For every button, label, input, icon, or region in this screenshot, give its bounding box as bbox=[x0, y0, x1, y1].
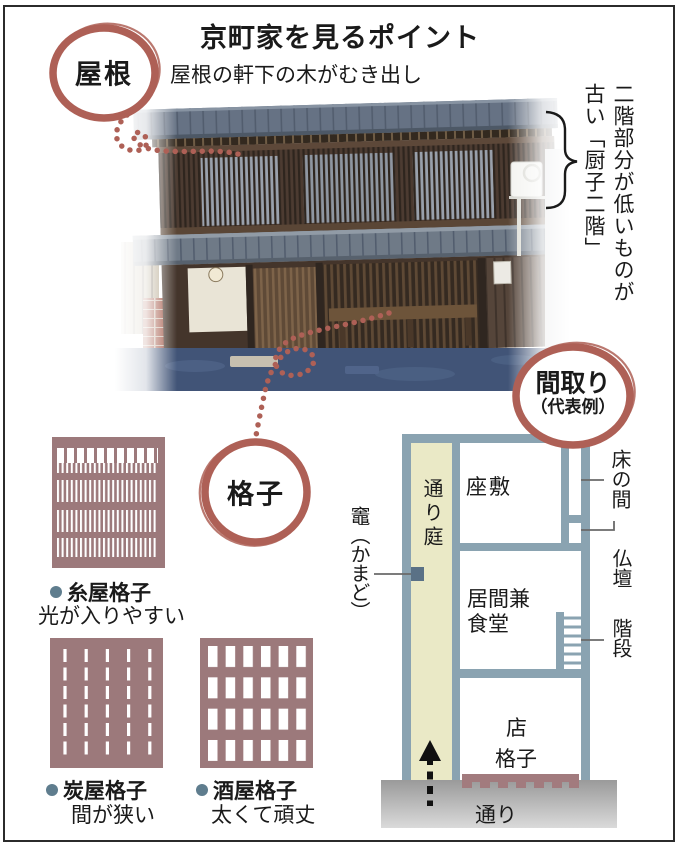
room-label-zashiki: 座敷 bbox=[466, 471, 512, 501]
bullet-icon bbox=[46, 784, 58, 796]
infographic-kyomachiya: 京町家を見るポイント 屋根の軒下の木がむき出し 屋根 格子 間取り （代表例） … bbox=[0, 0, 680, 851]
koshi-circle-label: 格子 bbox=[227, 473, 285, 512]
kamado-marker bbox=[411, 567, 424, 581]
room-label-ima: 居間兼 食堂 bbox=[467, 587, 530, 637]
street-label: 通り bbox=[475, 799, 517, 829]
itoya-koshi-diagram bbox=[52, 437, 165, 568]
sumiya-koshi-diagram bbox=[50, 638, 163, 768]
second-floor-note-line2: 古い「厨子二階」 bbox=[582, 83, 605, 259]
kamado-label: 竈（かまど） bbox=[344, 506, 373, 620]
dotted-trails bbox=[116, 115, 389, 436]
room-label-kaidan: 階段 bbox=[606, 618, 635, 658]
madori-label: 間取り bbox=[531, 371, 616, 398]
page-title: 京町家を見るポイント bbox=[0, 16, 680, 55]
sakaya-koshi-diagram bbox=[200, 638, 314, 768]
room-label-toriniwa: 通り庭 bbox=[417, 478, 446, 550]
lattice-desc-sumiya: 間が狭い bbox=[71, 799, 155, 829]
roof-circle-label: 屋根 bbox=[75, 53, 133, 92]
roof-trail bbox=[116, 115, 238, 154]
lattice-desc-sakaya: 太くて頑丈 bbox=[211, 799, 315, 829]
room-label-butsudan: 仏壇 bbox=[606, 548, 635, 588]
room-label-mise: 店 bbox=[506, 712, 527, 742]
lattice-desc-itoya: 光が入りやすい bbox=[38, 600, 185, 630]
second-floor-brace bbox=[546, 112, 577, 208]
diagram-overlay bbox=[0, 0, 680, 851]
bullet-icon bbox=[196, 784, 208, 796]
second-floor-note-line1: 二階部分が低いものが bbox=[611, 83, 634, 303]
stairs-rungs bbox=[564, 618, 581, 672]
room-label-tokonoma: 床の間 bbox=[605, 449, 634, 509]
madori-circle-label: 間取り （代表例） bbox=[531, 371, 616, 418]
bullet-icon bbox=[50, 586, 62, 598]
roof-note: 屋根の軒下の木がむき出し bbox=[170, 59, 422, 89]
room-label-mise-koshi: 格子 bbox=[495, 743, 537, 773]
koshi-trail bbox=[256, 313, 389, 436]
second-floor-note: 二階部分が低いものが 古い「厨子二階」 bbox=[579, 83, 637, 303]
madori-sublabel: （代表例） bbox=[531, 398, 616, 418]
